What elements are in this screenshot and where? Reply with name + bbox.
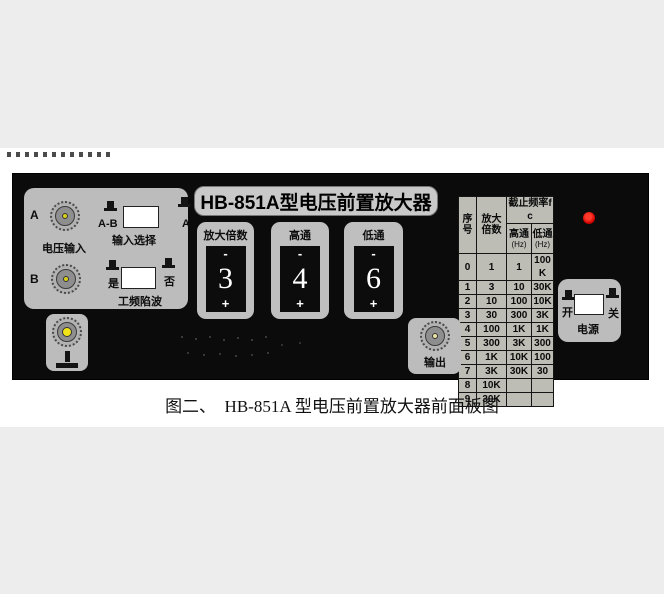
power-caption: 电源 [577, 324, 599, 336]
table-cell: 6 [459, 351, 477, 365]
power-led-indicator [583, 212, 595, 224]
table-cell: 30K [507, 365, 532, 379]
gain-display: - 3 + [206, 246, 246, 312]
plus-button: + [370, 299, 378, 309]
panel-title: HB-851A型电压前置放大器 [194, 186, 438, 216]
notch-no-label: 否 [164, 276, 175, 288]
table-cell: 4 [459, 323, 477, 337]
col-header-cutoff: 截止频率fc [507, 197, 554, 224]
table-cell: 1K [507, 323, 532, 337]
col-header-gain: 放大倍数 [477, 197, 507, 254]
table-cell: 10K [532, 295, 554, 309]
highpass-control: 高通 - 4 + [271, 222, 329, 319]
notch-filter-switch [121, 267, 156, 289]
notch-filter-caption: 工频陷波 [118, 296, 162, 308]
table-row: 131030K [459, 281, 554, 295]
table-cell: 3K [477, 365, 507, 379]
power-section: 开 关 电源 [558, 279, 621, 342]
table-cell: 100 [477, 323, 507, 337]
toggle-lever-icon [104, 201, 117, 211]
table-cell: 2 [459, 295, 477, 309]
table-row: 53003K300 [459, 337, 554, 351]
table-cell: 30 [532, 365, 554, 379]
table-cell: 10 [507, 281, 532, 295]
table-cell: 300 [507, 309, 532, 323]
minus-button: - [223, 249, 227, 259]
cutoff-frequency-table: 序号 放大倍数 截止频率fc 高通(Hz) 低通(Hz) 011100K1310… [458, 196, 554, 407]
input-select-switch [123, 206, 159, 228]
table-cell: 1 [507, 254, 532, 281]
output-section: 输出 [408, 318, 461, 374]
clipped-text-fragment [7, 152, 111, 157]
table-cell: 300 [477, 337, 507, 351]
lowpass-display: - 6 + [354, 246, 394, 312]
table-cell: 100 [532, 351, 554, 365]
table-cell: 8 [459, 379, 477, 393]
figure-caption: 图二、 HB-851A 型电压前置放大器前面板图 [0, 392, 664, 417]
table-cell: 1K [477, 351, 507, 365]
minus-button: - [298, 249, 302, 259]
table-cell: 3 [459, 309, 477, 323]
table-cell: 300 [532, 337, 554, 351]
table-cell: 30 [477, 309, 507, 323]
faint-watermark-specks [181, 336, 183, 338]
table-cell: 1 [459, 281, 477, 295]
connector-b-label: B [30, 273, 39, 285]
table-cell: 3K [532, 309, 554, 323]
connector-a-label: A [30, 209, 39, 221]
table-cell: 100K [532, 254, 554, 281]
select-ab-label: A-B [98, 218, 118, 230]
table-row: 011100K [459, 254, 554, 281]
col-header-seq: 序号 [459, 197, 477, 254]
input-select-caption: 输入选择 [112, 235, 156, 247]
table-cell: 1 [477, 254, 507, 281]
table-cell: 10K [507, 351, 532, 365]
bnc-connector-b-icon [51, 264, 81, 294]
gain-label: 放大倍数 [197, 227, 254, 243]
ground-section [46, 314, 88, 371]
toggle-lever-icon [162, 258, 175, 268]
toggle-lever-icon [178, 197, 191, 207]
highpass-value: 4 [293, 263, 308, 295]
toggle-lever-icon [106, 260, 119, 270]
col-header-lowpass: 低通(Hz) [532, 224, 554, 254]
input-section: A A-B A 输入选择 电压输入 B 是 否 工频陷波 [24, 188, 188, 309]
highpass-label: 高通 [271, 227, 329, 243]
gain-control: 放大倍数 - 3 + [197, 222, 254, 319]
table-row: 73K30K30 [459, 365, 554, 379]
bnc-output-connector-icon [420, 321, 450, 351]
voltage-input-caption: 电压输入 [42, 243, 86, 255]
output-label: 输出 [424, 357, 446, 369]
document-page: A A-B A 输入选择 电压输入 B 是 否 工频陷波 HB-851A型电压前… [0, 0, 664, 594]
plus-button: + [296, 299, 304, 309]
select-a-label: A [182, 218, 190, 230]
table-cell: 100 [507, 295, 532, 309]
notch-yes-label: 是 [108, 278, 119, 290]
col-header-highpass: 高通(Hz) [507, 224, 532, 254]
front-panel: A A-B A 输入选择 电压输入 B 是 否 工频陷波 HB-851A型电压前… [12, 173, 649, 380]
table-cell: 10K [477, 379, 507, 393]
table-cell: 5 [459, 337, 477, 351]
ground-icon [56, 351, 78, 368]
toggle-lever-icon [606, 288, 619, 298]
bnc-ground-connector-icon [52, 317, 82, 347]
table-cell: 7 [459, 365, 477, 379]
table-row: 21010010K [459, 295, 554, 309]
power-on-label: 开 [562, 307, 573, 319]
highpass-display: - 4 + [280, 246, 320, 312]
table-cell: 0 [459, 254, 477, 281]
table-cell [507, 379, 532, 393]
table-cell: 3 [477, 281, 507, 295]
table-cell: 10 [477, 295, 507, 309]
lowpass-label: 低通 [344, 227, 403, 243]
plus-button: + [222, 299, 230, 309]
table-row: 810K [459, 379, 554, 393]
table-cell: 1K [532, 323, 554, 337]
table-row: 61K10K100 [459, 351, 554, 365]
table-cell [532, 379, 554, 393]
table-cell: 3K [507, 337, 532, 351]
lowpass-value: 6 [366, 263, 381, 295]
power-switch [574, 294, 604, 315]
table-cell: 30K [532, 281, 554, 295]
table-row: 41001K1K [459, 323, 554, 337]
minus-button: - [371, 249, 375, 259]
gain-value: 3 [218, 263, 233, 295]
lowpass-control: 低通 - 6 + [344, 222, 403, 319]
freq-table-body: 011100K131030K21010010K3303003K41001K1K5… [459, 254, 554, 407]
table-row: 3303003K [459, 309, 554, 323]
power-off-label: 关 [608, 308, 619, 320]
bnc-connector-a-icon [50, 201, 80, 231]
